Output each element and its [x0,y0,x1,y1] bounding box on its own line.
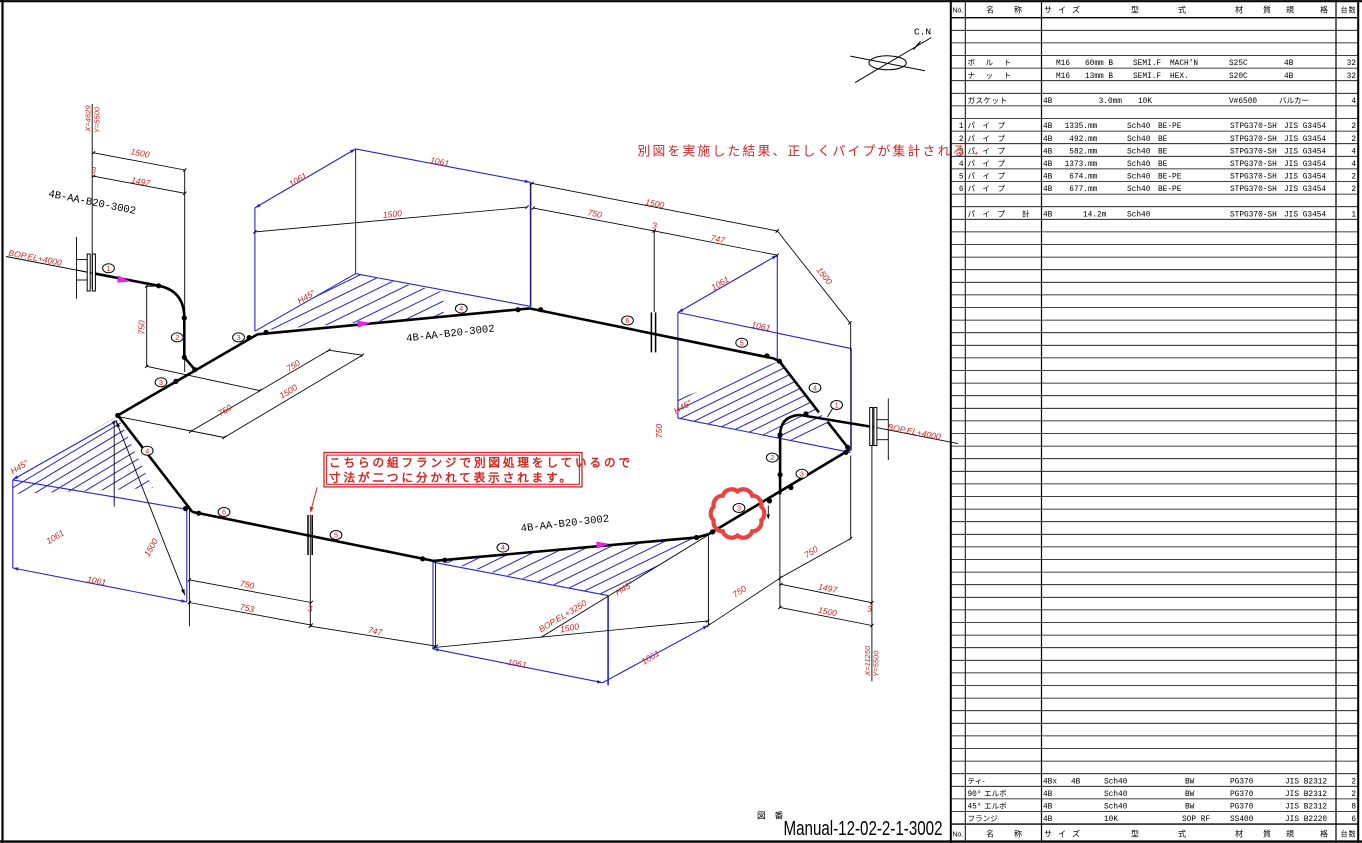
svg-text:パ: パ [968,121,976,130]
svg-text:X=4629: X=4629 [84,105,93,133]
svg-text:60mm B: 60mm B [1085,60,1113,68]
svg-text:10K: 10K [1104,816,1118,824]
svg-text:90°: 90° [968,790,982,799]
svg-text:サ: サ [1044,6,1052,15]
svg-text:SEMI.F: SEMI.F [1133,73,1161,81]
svg-text:こちらの組フランジで別図処理をしているので: こちらの組フランジで別図処理をしているので [329,456,633,470]
svg-text:イ: イ [983,159,991,168]
svg-text:JIS B2312: JIS B2312 [1285,791,1327,799]
svg-text:型: 型 [1131,6,1139,15]
svg-text:イ: イ [1058,830,1066,839]
svg-text:規: 規 [1286,5,1294,15]
svg-text:6: 6 [222,508,226,517]
svg-text:JIS G3454: JIS G3454 [1284,211,1326,219]
svg-text:ト: ト [1004,71,1012,80]
svg-text:PG370: PG370 [1230,778,1254,786]
svg-text:ボ: ボ [968,58,976,67]
svg-text:2: 2 [1351,123,1356,131]
svg-text:パ: パ [968,184,976,193]
svg-text:称: 称 [1014,829,1022,839]
svg-text:JIS G3454: JIS G3454 [1284,136,1326,144]
svg-text:ル: ル [986,58,994,67]
svg-text:Sch40: Sch40 [1127,186,1151,194]
svg-text:4: 4 [501,543,505,552]
svg-text:材: 材 [1235,829,1243,839]
svg-text:ス: ス [976,96,984,105]
svg-text:ケ: ケ [984,96,992,105]
svg-text:Sch40: Sch40 [1104,804,1128,812]
svg-text:プ: プ [998,134,1006,143]
svg-text:BW: BW [1185,778,1195,786]
svg-text:MACH'N: MACH'N [1170,60,1198,68]
svg-text:4B: 4B [1043,174,1053,182]
svg-text:BE: BE [1158,148,1168,156]
svg-text:台: 台 [1341,6,1348,15]
svg-text:Y=5500: Y=5500 [871,650,880,677]
svg-text:SOP RF: SOP RF [1182,816,1210,824]
svg-text:別図を実施した結果、正しくパイプが集計される→: 別図を実施した結果、正しくパイプが集計される→ [638,144,983,159]
svg-text:Sch40: Sch40 [1104,791,1128,799]
svg-text:3.0mm: 3.0mm [1099,98,1123,106]
svg-text:イ: イ [983,146,991,155]
svg-text:型: 型 [1131,830,1139,839]
svg-text:4B: 4B [1043,136,1053,144]
svg-text:名: 名 [986,5,994,15]
svg-text:4: 4 [145,446,149,455]
svg-text:750: 750 [654,424,664,439]
svg-text:エルボ: エルボ [984,789,1007,798]
svg-text:2: 2 [1351,136,1356,144]
svg-text:台: 台 [1341,830,1348,839]
svg-text:名: 名 [986,829,994,839]
svg-text:mm: mm [1088,136,1098,144]
svg-text:mm: mm [1088,174,1098,182]
svg-text:1373.: 1373. [1065,161,1088,169]
svg-text:Sch40: Sch40 [1104,778,1128,786]
svg-text:式: 式 [1178,829,1186,839]
svg-text:イ: イ [983,121,991,130]
svg-text:JIS G3454: JIS G3454 [1284,161,1326,169]
svg-text:1: 1 [959,123,964,131]
svg-text:STPG370-SH: STPG370-SH [1230,211,1277,219]
svg-text:4: 4 [1351,161,1356,169]
svg-text:1: 1 [835,401,839,410]
svg-text:8: 8 [1351,804,1356,812]
svg-text:6: 6 [959,186,964,194]
svg-text:ズ: ズ [1072,5,1080,15]
svg-text:パ: パ [968,209,976,218]
svg-text:3: 3 [867,604,872,614]
svg-text:BW: BW [1185,791,1195,799]
svg-text:式: 式 [1178,5,1186,15]
svg-text:V#6500: V#6500 [1229,98,1257,106]
svg-text:ッ: ッ [986,71,994,80]
svg-text:3: 3 [159,378,163,387]
svg-text:1500: 1500 [382,208,402,220]
svg-text:Sch40: Sch40 [1127,161,1151,169]
svg-text:寸法が二つに分かれて表示されます。: 寸法が二つに分かれて表示されます。 [329,471,574,485]
svg-text:5: 5 [959,174,964,182]
svg-text:Y=5500: Y=5500 [93,106,102,133]
svg-text:2: 2 [770,453,774,462]
svg-text:2: 2 [1351,174,1356,182]
svg-text:PG370: PG370 [1230,791,1254,799]
svg-text:BE: BE [1158,136,1168,144]
svg-text:C.N: C.N [914,27,931,38]
svg-text:492.: 492. [1069,136,1088,144]
svg-text:BE-PE: BE-PE [1158,174,1182,182]
svg-text:32: 32 [1347,73,1357,81]
svg-text:JIS B2312: JIS B2312 [1285,778,1327,786]
svg-text:6: 6 [626,316,630,325]
svg-text:4B: 4B [1043,148,1053,156]
svg-text:数: 数 [1349,6,1356,15]
svg-text:イ: イ [983,172,991,181]
svg-text:4: 4 [813,383,817,392]
svg-text:5: 5 [334,531,338,540]
svg-text:4: 4 [459,304,463,313]
svg-text:ティ-: ティ- [968,776,986,785]
svg-text:規: 規 [1286,829,1294,839]
svg-text:4B: 4B [1284,73,1294,81]
svg-text:4B: 4B [1043,98,1053,106]
svg-text:STPG370-SH: STPG370-SH [1230,161,1277,169]
svg-text:32: 32 [1347,60,1357,68]
svg-text:イ: イ [983,184,991,193]
svg-text:BE-PE: BE-PE [1158,123,1182,131]
svg-text:2: 2 [1351,186,1356,194]
svg-text:5: 5 [740,338,744,347]
svg-text:45°: 45° [968,803,982,812]
svg-text:格: 格 [1320,829,1328,839]
svg-text:パ: パ [968,172,976,181]
svg-text:BE-PE: BE-PE [1158,186,1182,194]
svg-text:ト: ト [1000,96,1008,105]
svg-text:mm: mm [1088,148,1098,156]
svg-text:3: 3 [800,469,804,478]
svg-text:4B: 4B [1284,60,1294,68]
svg-text:STPG370-SH: STPG370-SH [1230,148,1277,156]
svg-text:JIS G3454: JIS G3454 [1284,174,1326,182]
svg-text:フランジ: フランジ [968,814,999,823]
svg-text:STPG370-SH: STPG370-SH [1230,174,1277,182]
svg-text:3: 3 [737,504,741,513]
svg-text:ズ: ズ [1072,829,1080,839]
svg-text:14.2m: 14.2m [1083,211,1107,219]
svg-text:プ: プ [998,121,1006,130]
svg-text:JIS G3454: JIS G3454 [1284,186,1326,194]
svg-text:2: 2 [175,333,179,342]
svg-text:582.: 582. [1069,148,1088,156]
svg-text:プ: プ [998,184,1006,193]
svg-text:ト: ト [1004,58,1012,67]
svg-text:S20C: S20C [1229,73,1248,81]
svg-text:10K: 10K [1138,98,1152,106]
svg-text:HEX.: HEX. [1170,73,1189,81]
svg-text:プ: プ [998,209,1006,218]
svg-text:SEMI.F: SEMI.F [1133,60,1161,68]
svg-text:3: 3 [91,165,96,175]
svg-text:677.: 677. [1069,186,1088,194]
svg-text:S25C: S25C [1229,60,1248,68]
svg-text:称: 称 [1014,5,1022,15]
svg-text:ッ: ッ [992,96,1000,105]
svg-text:STPG370-SH: STPG370-SH [1230,123,1277,131]
svg-text:1335.: 1335. [1065,123,1088,131]
svg-text:4: 4 [1351,98,1356,106]
svg-text:ガ: ガ [968,95,976,105]
svg-text:3: 3 [308,604,313,614]
svg-text:6: 6 [1351,816,1356,824]
svg-text:No.: No. [952,8,963,15]
svg-text:mm: mm [1088,123,1098,131]
svg-text:4Bx: 4Bx [1043,778,1057,786]
svg-text:750: 750 [136,320,146,335]
svg-text:材: 材 [1235,5,1243,15]
svg-text:PG370: PG370 [1230,804,1254,812]
svg-text:mm: mm [1088,186,1098,194]
svg-text:2: 2 [1351,791,1356,799]
svg-text:計: 計 [1022,208,1030,218]
svg-text:Sch40: Sch40 [1127,123,1151,131]
svg-text:4: 4 [1351,148,1356,156]
svg-text:4B: 4B [1071,778,1081,786]
svg-text:Sch40: Sch40 [1127,211,1151,219]
svg-text:SS400: SS400 [1230,816,1254,824]
svg-text:エルボ: エルボ [984,802,1007,811]
svg-text:3: 3 [652,221,657,231]
svg-text:図: 図 [757,810,766,820]
svg-text:BW: BW [1185,804,1195,812]
svg-text:3: 3 [237,333,241,342]
svg-text:No.: No. [952,832,963,839]
svg-text:JIS G3454: JIS G3454 [1284,123,1326,131]
svg-text:Sch40: Sch40 [1127,136,1151,144]
svg-text:質: 質 [1263,829,1271,839]
svg-text:4B: 4B [1043,211,1053,219]
svg-text:プ: プ [998,172,1006,181]
svg-text:プ: プ [998,146,1006,155]
svg-text:STPG370-SH: STPG370-SH [1230,186,1277,194]
svg-text:ナ: ナ [968,71,976,80]
svg-text:mm: mm [1088,161,1098,169]
svg-text:イ: イ [1058,6,1066,15]
svg-text:パ: パ [968,134,976,143]
svg-text:プ: プ [998,159,1006,168]
svg-text:JIS G3454: JIS G3454 [1284,148,1326,156]
svg-text:4B: 4B [1043,161,1053,169]
svg-text:Manual-12-02-2-1-3002: Manual-12-02-2-1-3002 [784,818,943,840]
svg-text:JIS B2220: JIS B2220 [1285,816,1327,824]
svg-text:1: 1 [1351,211,1356,219]
svg-text:数: 数 [1349,830,1356,839]
svg-text:イ: イ [983,134,991,143]
svg-text:パ: パ [968,159,976,168]
svg-text:13mm B: 13mm B [1085,73,1113,81]
svg-text:JIS B2312: JIS B2312 [1285,804,1327,812]
svg-text:Sch40: Sch40 [1127,148,1151,156]
svg-text:M16: M16 [1056,60,1070,68]
svg-text:M16: M16 [1056,73,1070,81]
svg-text:4B: 4B [1043,816,1053,824]
svg-text:4: 4 [959,161,964,169]
svg-text:イ: イ [983,209,991,218]
svg-text:2: 2 [1351,778,1356,786]
svg-text:番: 番 [775,809,784,820]
svg-text:格: 格 [1320,5,1328,15]
svg-text:674.: 674. [1069,174,1088,182]
svg-text:サ: サ [1044,830,1052,839]
svg-text:STPG370-SH: STPG370-SH [1230,136,1277,144]
svg-text:4B: 4B [1043,791,1053,799]
svg-text:1: 1 [107,264,111,273]
svg-text:4B: 4B [1043,186,1053,194]
svg-text:4B: 4B [1043,804,1053,812]
svg-text:Sch40: Sch40 [1127,174,1151,182]
svg-text:バルカー: バルカー [1279,96,1309,105]
svg-text:BE: BE [1158,161,1168,169]
svg-text:質: 質 [1263,5,1271,15]
svg-text:4B: 4B [1043,123,1053,131]
